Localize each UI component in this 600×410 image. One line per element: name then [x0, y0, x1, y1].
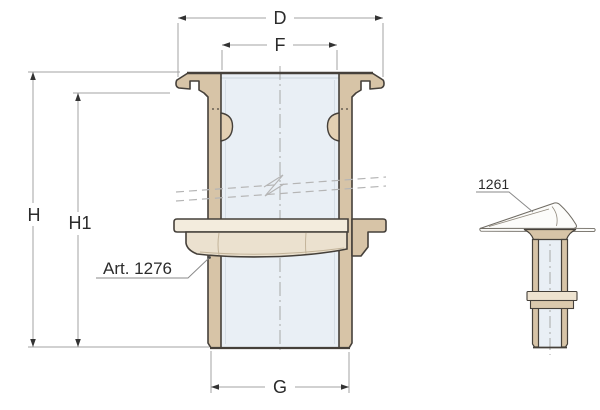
article-label-scoop: 1261 — [478, 176, 509, 192]
dim-label-H: H — [28, 205, 41, 225]
arrowhead — [30, 72, 36, 80]
scoop-nut — [531, 301, 574, 309]
thread-mark — [217, 108, 219, 110]
dim-G: G — [211, 351, 349, 397]
nut-facet-line — [306, 233, 307, 254]
arrowhead — [222, 42, 230, 48]
dim-label-D: D — [274, 8, 287, 28]
washer-nut-section — [352, 219, 386, 256]
dim-F: F — [222, 35, 337, 70]
leader-dot — [208, 256, 211, 259]
arrowhead — [211, 384, 219, 390]
leader-line — [476, 192, 533, 212]
main-section-view — [174, 66, 386, 352]
dim-H: H — [28, 72, 210, 347]
arrowhead — [178, 15, 186, 21]
scoop-side-view: 1261 — [476, 176, 595, 355]
drawing-svg: D F H H1 — [0, 0, 600, 410]
scoop-fitting-head — [524, 230, 576, 240]
dim-label-G: G — [273, 377, 287, 397]
article-callout-main: Art. 1276 — [96, 256, 211, 278]
article-label-main: Art. 1276 — [103, 259, 172, 278]
arrowhead — [375, 15, 383, 21]
dim-label-F: F — [275, 35, 286, 55]
right-flange-wall-section — [339, 73, 384, 348]
technical-drawing-canvas: D F H H1 — [0, 0, 600, 410]
thread-mark — [212, 108, 214, 110]
arrowhead — [75, 93, 81, 101]
dim-H1: H1 — [68, 93, 170, 347]
thread-mark — [346, 108, 348, 110]
dim-label-H1: H1 — [68, 213, 91, 233]
arrowhead — [329, 42, 337, 48]
scoop-washer — [527, 292, 577, 301]
arrowhead — [341, 384, 349, 390]
arrowhead — [30, 339, 36, 347]
washer-exterior — [174, 219, 348, 232]
thread-mark — [341, 108, 343, 110]
arrowhead — [75, 339, 81, 347]
left-flange-wall-section — [176, 73, 221, 348]
